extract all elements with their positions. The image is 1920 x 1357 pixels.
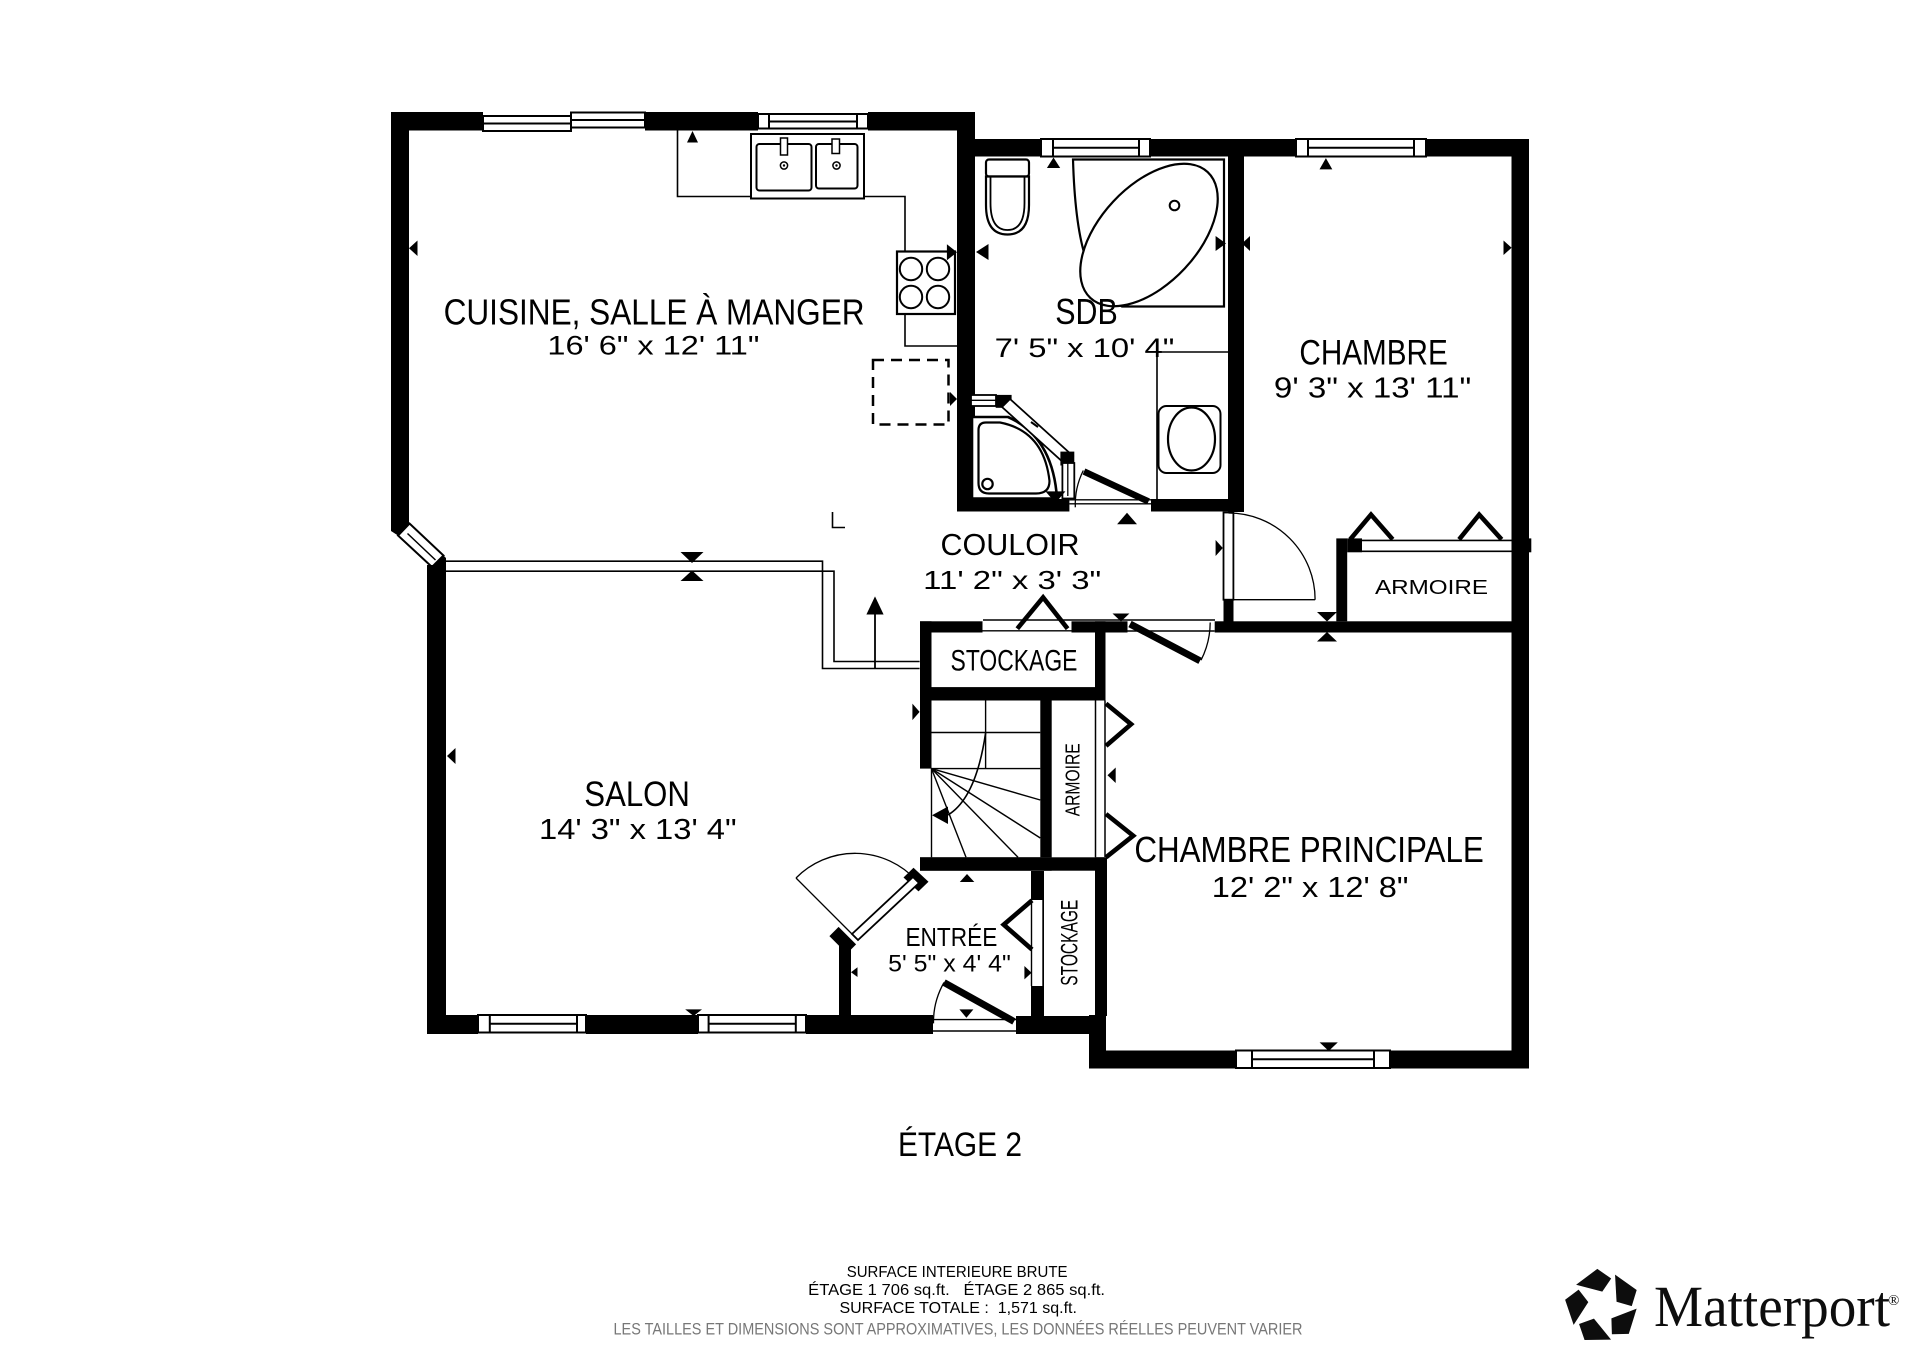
svg-text:5' 5" x 4' 4": 5' 5" x 4' 4": [888, 951, 1011, 978]
svg-text:ENTRÉE: ENTRÉE: [905, 922, 997, 952]
svg-text:SURFACE INTERIEURE BRUTE: SURFACE INTERIEURE BRUTE: [847, 1264, 1068, 1281]
svg-text:SDB: SDB: [1055, 291, 1118, 332]
svg-text:SURFACE TOTALE : 1,571 sq.ft.: SURFACE TOTALE : 1,571 sq.ft.: [839, 1300, 1077, 1317]
svg-text:STOCKAGE: STOCKAGE: [1057, 900, 1084, 986]
svg-text:®: ®: [1888, 1293, 1899, 1309]
svg-text:16' 6" x 12' 11": 16' 6" x 12' 11": [547, 330, 759, 360]
svg-text:12' 2" x 12' 8": 12' 2" x 12' 8": [1212, 872, 1409, 904]
svg-text:ÉTAGE 1 706 sq.ft. ÉTAGE 2 8: ÉTAGE 1 706 sq.ft. ÉTAGE 2 865 sq.ft.: [808, 1280, 1105, 1299]
svg-text:COULOIR: COULOIR: [941, 527, 1080, 562]
svg-text:11' 2" x 3' 3": 11' 2" x 3' 3": [923, 565, 1101, 595]
svg-text:14' 3" x 13' 4": 14' 3" x 13' 4": [539, 814, 737, 846]
svg-text:ARMOIRE: ARMOIRE: [1063, 743, 1085, 816]
svg-text:7' 5" x 10' 4": 7' 5" x 10' 4": [995, 333, 1175, 363]
svg-text:SALON: SALON: [584, 775, 690, 814]
svg-text:ÉTAGE 2: ÉTAGE 2: [898, 1126, 1022, 1164]
svg-text:STOCKAGE: STOCKAGE: [951, 645, 1078, 678]
svg-text:ARMOIRE: ARMOIRE: [1375, 576, 1488, 599]
svg-text:CHAMBRE PRINCIPALE: CHAMBRE PRINCIPALE: [1134, 829, 1483, 870]
svg-text:9' 3" x 13' 11": 9' 3" x 13' 11": [1274, 373, 1471, 405]
svg-text:CUISINE, SALLE À MANGER: CUISINE, SALLE À MANGER: [444, 291, 865, 332]
svg-text:CHAMBRE: CHAMBRE: [1299, 334, 1447, 373]
svg-text:LES TAILLES ET DIMENSIONS SONT: LES TAILLES ET DIMENSIONS SONT APPROXIMA…: [614, 1320, 1303, 1339]
svg-text:Matterport: Matterport: [1654, 1274, 1890, 1339]
